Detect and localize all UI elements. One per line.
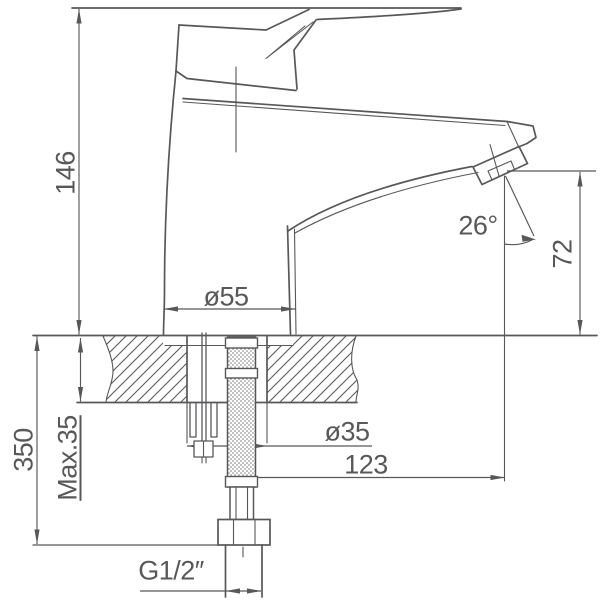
lever-handle: [179, 10, 309, 31]
countertop-section: [33, 336, 597, 546]
hose-ferrule-top: [226, 338, 258, 348]
dim-label-stream-angle: 26°: [458, 213, 497, 240]
stream-direction-ray: [506, 176, 535, 236]
hose-ferrule-low: [226, 477, 258, 488]
body-left-edge: [164, 71, 177, 335]
dim-label-below-counter: 350: [11, 428, 38, 472]
dim-label-max-thickness: Max.35: [55, 415, 82, 501]
mounting-bracket: [190, 403, 196, 437]
hex-nut: [218, 520, 270, 546]
dim-label-outlet-height: 72: [550, 239, 577, 268]
spout-tip: [507, 122, 536, 148]
aerator-axis: [490, 145, 499, 177]
dim-label-spout-reach: 123: [344, 452, 388, 479]
body-right-edge: [288, 226, 291, 334]
dim-label-hole-diameter: ø35: [324, 419, 369, 446]
dim-label-base-diameter: ø55: [203, 284, 248, 311]
spout-bottom-edge: [288, 167, 472, 232]
spout-top-edge: [183, 99, 507, 122]
dim-label-total-height: 146: [53, 151, 80, 195]
flex-hose: [228, 337, 256, 487]
technical-drawing-canvas: 146 350 Max.35 ø55 ø35 123 72 26° G1/2″: [0, 0, 600, 600]
hose-connector: [230, 487, 254, 520]
hose-ferrule-mid: [226, 369, 258, 379]
dim-label-connection-thread: G1/2″: [138, 558, 204, 585]
faucet-line-drawing: [0, 0, 600, 600]
dimension-lines: [34, 8, 596, 594]
